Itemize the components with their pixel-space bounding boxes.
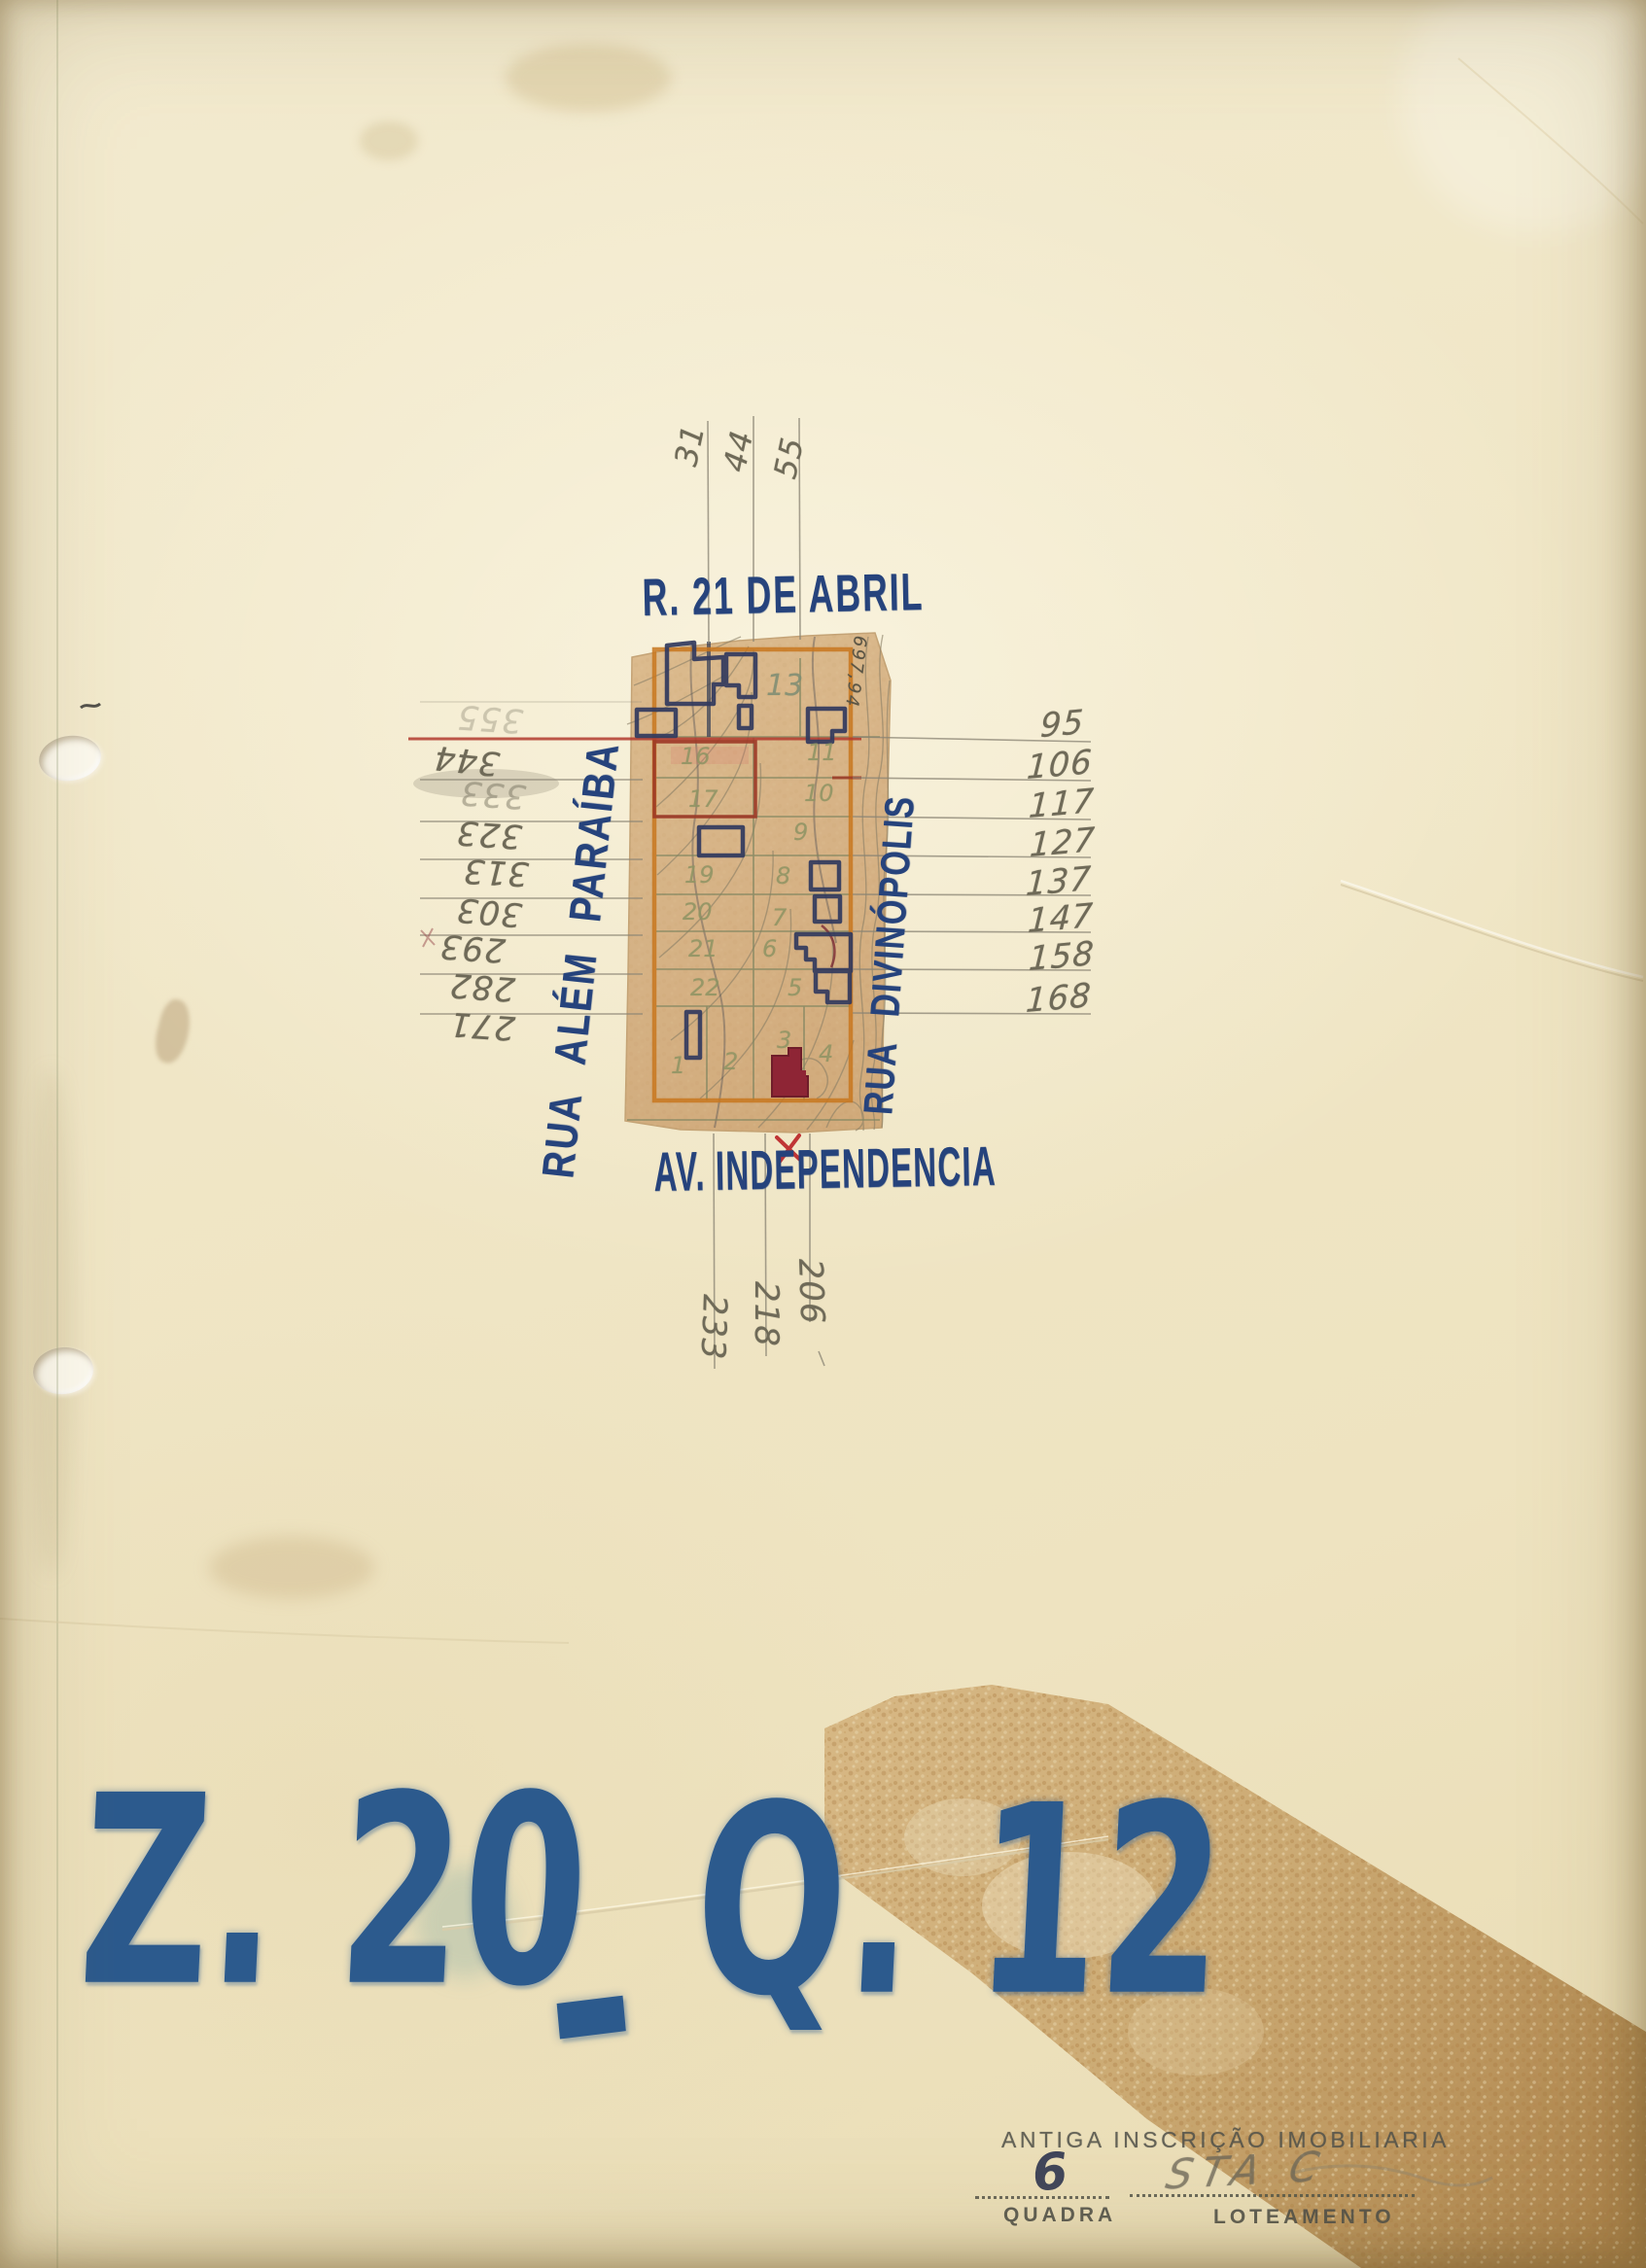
survey-mark: 323 xyxy=(455,816,523,854)
loteamento-line xyxy=(1130,2194,1415,2197)
lot-number: 16 xyxy=(681,743,711,770)
lot-number: 4 xyxy=(819,1040,833,1067)
survey-mark: 55 xyxy=(769,435,808,481)
loteamento-value: STA C xyxy=(1163,2146,1331,2195)
survey-mark: 168 xyxy=(1025,979,1092,1018)
survey-mark: 293 xyxy=(438,929,507,967)
survey-mark: 218 xyxy=(750,1281,783,1347)
survey-mark: 313 xyxy=(462,854,530,890)
lot-number: 1 xyxy=(671,1052,685,1079)
quadra-value: 6 xyxy=(1031,2143,1069,2203)
lot-number: 5 xyxy=(788,974,802,1001)
survey-mark: 95 xyxy=(1039,706,1085,743)
ink-squiggle xyxy=(81,704,100,708)
survey-mark: 333 xyxy=(459,776,527,814)
survey-mark: 117 xyxy=(1028,785,1095,823)
survey-mark: 147 xyxy=(1027,899,1094,938)
lot-number: 21 xyxy=(688,935,718,962)
lot-number: 13 xyxy=(766,669,803,703)
survey-mark: 137 xyxy=(1025,862,1092,901)
lot-number: 3 xyxy=(777,1027,791,1054)
lot-number: 8 xyxy=(776,862,790,890)
survey-mark: 31 xyxy=(670,422,709,469)
lot-number: 7 xyxy=(772,904,787,931)
survey-mark: 158 xyxy=(1028,937,1095,976)
survey-mark: 303 xyxy=(455,892,524,931)
street-label-top: R. 21 DE ABRIL xyxy=(642,566,925,624)
quadra-code: Q. 12 xyxy=(690,1779,1230,2025)
zone-code: Z. 20 xyxy=(76,1769,593,2015)
survey-mark: 271 xyxy=(448,1007,516,1045)
survey-mark: 233 xyxy=(696,1294,731,1361)
lot-number: 9 xyxy=(793,819,808,846)
survey-mark: 355 xyxy=(456,700,524,738)
quadra-line xyxy=(975,2196,1109,2199)
lot-number: 19 xyxy=(684,861,715,889)
lot-number: 22 xyxy=(690,974,720,1001)
survey-mark: 106 xyxy=(1026,746,1093,785)
scanned-cadastral-document: 31 44 55 R. 21 DE ABRIL RUA ALÉM PARAÍBA… xyxy=(0,0,1646,2268)
survey-mark: 282 xyxy=(448,968,516,1006)
quadra-label: QUADRA xyxy=(1003,2205,1116,2225)
loteamento-label: LOTEAMENTO xyxy=(1213,2207,1395,2227)
lot-number: 6 xyxy=(762,935,777,962)
survey-mark: 127 xyxy=(1029,823,1096,862)
lot-number: 20 xyxy=(683,898,713,925)
lot-number: 17 xyxy=(688,785,718,813)
lot-number: 2 xyxy=(723,1048,738,1075)
survey-mark: 206 xyxy=(793,1258,828,1325)
lot-number: 11 xyxy=(807,739,837,766)
street-label-bottom: AV. INDEPENDENCIA xyxy=(653,1139,997,1201)
small-red-check xyxy=(421,928,435,947)
lot-number: 10 xyxy=(804,780,834,807)
survey-mark: 44 xyxy=(718,428,757,474)
